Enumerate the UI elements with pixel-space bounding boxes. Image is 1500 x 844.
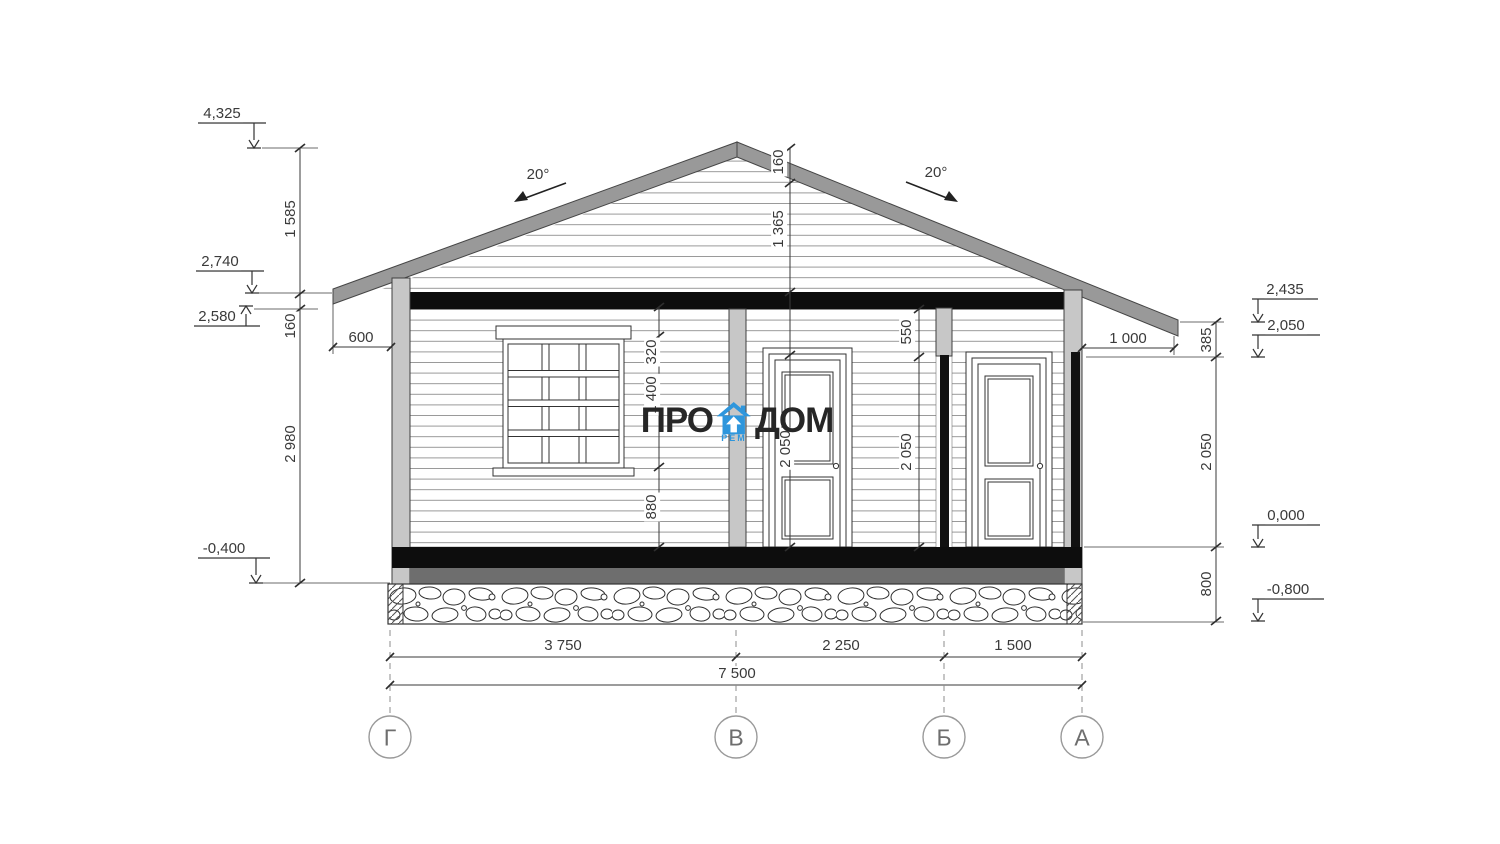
plinth <box>410 568 1064 584</box>
wall-top-band <box>408 292 1066 309</box>
level-m0400: -0,400 <box>201 541 248 557</box>
dim-7500: 7 500 <box>716 666 758 682</box>
watermark-pro: ПРО <box>641 401 713 441</box>
level-2580: 2,580 <box>196 309 238 325</box>
dim-1000: 1 000 <box>1107 331 1149 347</box>
window <box>493 326 634 476</box>
roof-angle-left: 20° <box>525 167 552 183</box>
dim-2050-mid: 2 050 <box>899 431 915 473</box>
axis-b: Б <box>936 725 951 752</box>
house-icon: РЕМ <box>716 402 752 436</box>
door-knob <box>1037 463 1042 468</box>
window-mullion <box>508 430 619 437</box>
door-right <box>966 352 1052 547</box>
dim-1500: 1 500 <box>992 638 1034 654</box>
level-0000: 0,000 <box>1265 508 1307 524</box>
axis-a: А <box>1074 725 1089 752</box>
dim-2050-right: 2 050 <box>1199 431 1215 473</box>
level-m0800: -0,800 <box>1265 582 1312 598</box>
dim-1585: 1 585 <box>283 198 299 240</box>
door-knob <box>833 463 838 468</box>
dim-320: 320 <box>644 337 660 366</box>
watermark: ПРО РЕМ ДОМ <box>641 401 834 441</box>
watermark-rem: РЕМ <box>721 433 747 443</box>
dim-550: 550 <box>899 317 915 346</box>
watermark-dom: ДОМ <box>755 401 833 441</box>
gable <box>374 157 1100 292</box>
axis-g: Г <box>384 725 396 752</box>
floor-band <box>392 547 1082 568</box>
level-2740: 2,740 <box>199 254 241 270</box>
dim-3750: 3 750 <box>542 638 584 654</box>
axis-v: В <box>728 725 743 752</box>
dim-600: 600 <box>346 330 375 346</box>
dim-1365: 1 365 <box>771 208 787 250</box>
elevation-sheet: 4,325 2,740 2,580 -0,400 2,435 2,050 0,0… <box>0 0 1500 844</box>
dim-2980: 2 980 <box>283 423 299 465</box>
level-4325: 4,325 <box>201 106 243 122</box>
window-mullion <box>508 400 619 407</box>
roof-angle-right: 20° <box>923 165 950 181</box>
foundation <box>388 584 1082 624</box>
level-2050: 2,050 <box>1265 318 1307 334</box>
level-2435: 2,435 <box>1264 282 1306 298</box>
dim-880: 880 <box>644 492 660 521</box>
dim-160-left: 160 <box>283 311 299 340</box>
dim-800: 800 <box>1199 569 1215 598</box>
dim-2250: 2 250 <box>820 638 862 654</box>
dim-385: 385 <box>1199 325 1215 354</box>
window-mullion <box>508 371 619 378</box>
window-sill <box>493 468 634 476</box>
dim-160-ridge: 160 <box>771 147 787 176</box>
